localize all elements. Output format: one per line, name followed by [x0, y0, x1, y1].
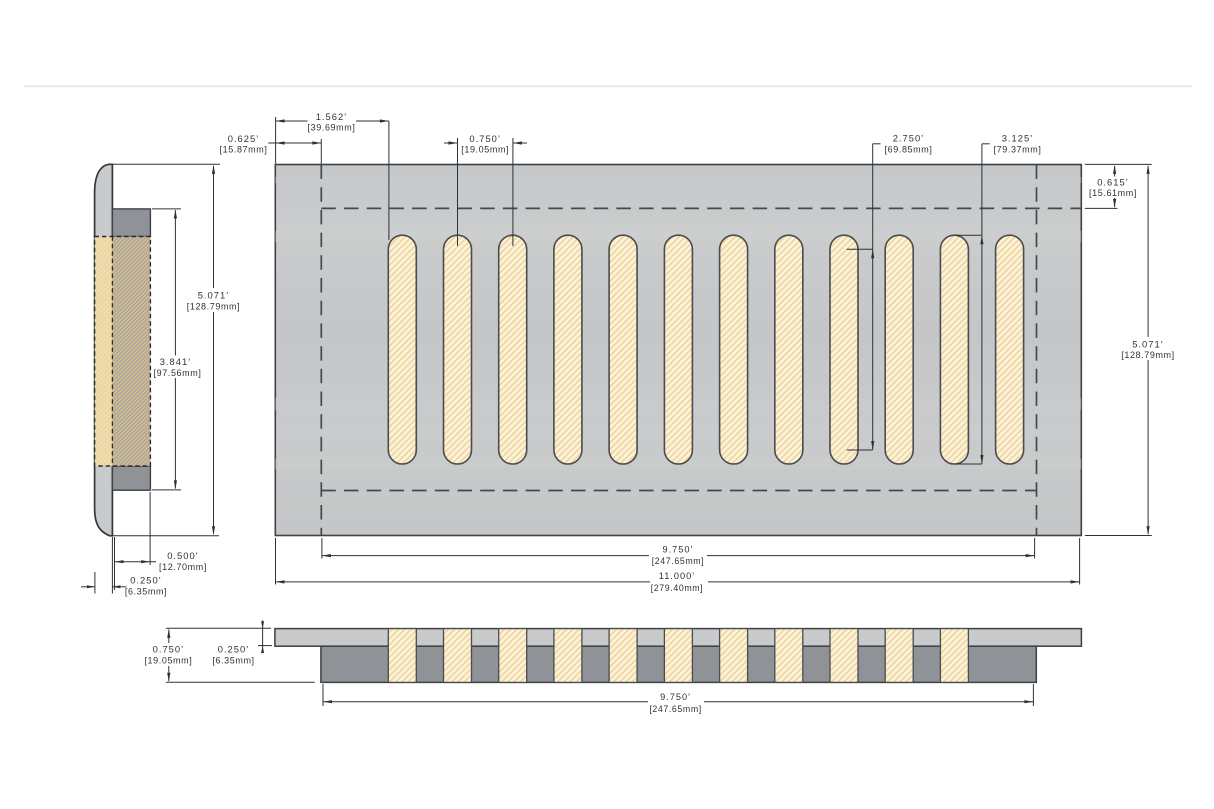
svg-text:[128.79mm]: [128.79mm]: [1121, 350, 1175, 360]
svg-text:[97.56mm]: [97.56mm]: [154, 368, 202, 378]
svg-text:[39.69mm]: [39.69mm]: [308, 123, 356, 133]
svg-text:[12.70mm]: [12.70mm]: [159, 562, 207, 572]
svg-text:0.500’: 0.500’: [167, 550, 199, 561]
svg-text:9.750’: 9.750’: [660, 692, 691, 702]
svg-text:5.071’: 5.071’: [198, 290, 230, 301]
svg-text:0.750’: 0.750’: [469, 133, 501, 144]
svg-text:0.615’: 0.615’: [1097, 176, 1129, 187]
svg-text:0.250’: 0.250’: [218, 644, 250, 655]
svg-text:[247.65mm]: [247.65mm]: [652, 556, 704, 566]
svg-text:[69.85mm]: [69.85mm]: [885, 144, 933, 154]
svg-text:9.750’: 9.750’: [662, 544, 693, 554]
svg-text:[6.35mm]: [6.35mm]: [212, 656, 254, 666]
svg-text:[247.65mm]: [247.65mm]: [649, 704, 701, 714]
svg-text:0.625’: 0.625’: [228, 133, 260, 144]
svg-text:11.000’: 11.000’: [659, 571, 695, 581]
svg-text:0.750’: 0.750’: [153, 644, 185, 655]
svg-text:[279.40mm]: [279.40mm]: [651, 583, 703, 593]
svg-text:[19.05mm]: [19.05mm]: [461, 145, 509, 155]
svg-text:[19.05mm]: [19.05mm]: [144, 656, 192, 666]
svg-text:[15.87mm]: [15.87mm]: [220, 145, 268, 155]
svg-text:1.562’: 1.562’: [316, 111, 348, 122]
svg-text:[6.35mm]: [6.35mm]: [125, 587, 167, 597]
svg-text:0.250’: 0.250’: [130, 575, 162, 586]
svg-text:3.841’: 3.841’: [160, 356, 192, 367]
svg-text:2.750’: 2.750’: [893, 133, 925, 144]
svg-text:[15.61mm]: [15.61mm]: [1089, 188, 1137, 198]
svg-text:[128.79mm]: [128.79mm]: [187, 301, 241, 311]
svg-text:5.071’: 5.071’: [1132, 338, 1164, 349]
svg-text:[79.37mm]: [79.37mm]: [994, 144, 1042, 154]
svg-text:3.125’: 3.125’: [1002, 133, 1034, 144]
